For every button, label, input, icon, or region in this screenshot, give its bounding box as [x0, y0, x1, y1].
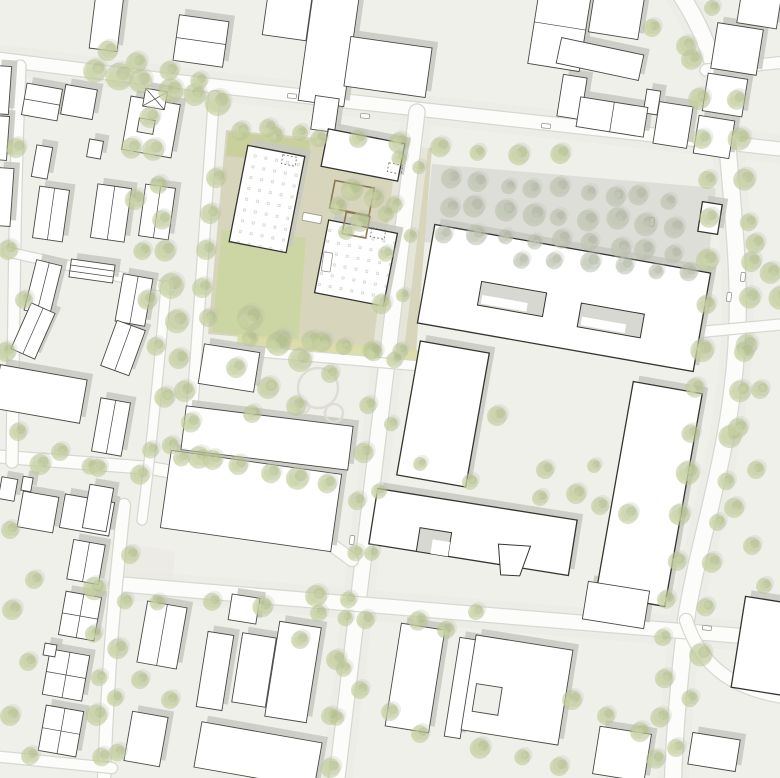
- tree-crown: [416, 163, 421, 168]
- tree-crown: [90, 632, 96, 638]
- tree-crown: [532, 213, 540, 221]
- tree-crown: [684, 269, 690, 275]
- tree-crown: [10, 609, 17, 616]
- tree-crown: [343, 668, 349, 674]
- building-footprint: [87, 139, 104, 159]
- tree-crown: [746, 296, 754, 304]
- building-footprint: [711, 23, 764, 76]
- building-footprint: [43, 643, 57, 657]
- tree-crown: [648, 23, 654, 29]
- tree-crown: [298, 639, 304, 645]
- tree-crown: [657, 634, 663, 640]
- site-plan-map: [0, 0, 780, 778]
- car: [541, 123, 550, 129]
- tree-crown: [212, 456, 219, 463]
- tree-crown: [137, 676, 143, 682]
- tree-crown: [213, 100, 222, 109]
- tree-crown: [418, 464, 423, 469]
- tree-crown: [134, 76, 142, 84]
- tree-crown: [173, 317, 181, 325]
- tree-crown: [407, 234, 412, 239]
- tree-crown: [738, 385, 746, 393]
- tree-crown: [624, 262, 630, 268]
- tree-crown: [246, 315, 255, 324]
- building: [173, 15, 229, 68]
- tree-crown: [668, 250, 674, 256]
- tree-crown: [127, 554, 133, 560]
- tree-crown: [371, 192, 378, 199]
- car: [702, 625, 711, 631]
- tree-crown: [110, 697, 116, 703]
- tree-crown: [193, 91, 201, 99]
- tree-crown: [723, 478, 729, 484]
- tree-crown: [200, 246, 207, 253]
- building: [42, 649, 89, 701]
- tree-crown: [359, 448, 366, 455]
- tree-crown: [363, 402, 369, 408]
- tree-crown: [195, 78, 201, 84]
- tree-crown: [675, 556, 682, 563]
- car: [349, 535, 355, 544]
- tree-crown: [94, 463, 100, 469]
- tree-crown: [672, 744, 678, 750]
- tree-crown: [139, 249, 145, 255]
- tree-crown: [673, 227, 680, 234]
- building: [43, 643, 57, 657]
- tree-crown: [91, 709, 99, 717]
- building-footprint: [61, 84, 98, 119]
- tree-crown: [625, 512, 632, 519]
- tree-crown: [8, 527, 14, 533]
- tree-crown: [696, 343, 704, 351]
- tree-crown: [595, 502, 601, 508]
- tree-crown: [14, 145, 21, 152]
- tree-crown: [554, 216, 560, 222]
- tree-crown: [709, 6, 715, 12]
- tree-crown: [345, 187, 353, 195]
- building: [87, 139, 104, 159]
- tree-crown: [689, 386, 696, 393]
- tree-crown: [207, 314, 213, 320]
- tree-crown: [156, 181, 162, 187]
- tree-crown: [346, 595, 352, 601]
- tree-crown: [6, 714, 13, 721]
- tree-crown: [438, 229, 444, 235]
- building-footprint: [17, 491, 59, 533]
- tree-crown: [148, 111, 155, 118]
- tree-crown: [295, 352, 303, 360]
- tree-crown: [142, 299, 149, 306]
- tree-crown: [448, 206, 455, 213]
- tree-crown: [325, 762, 332, 769]
- tree-crown: [583, 220, 591, 228]
- tree-crown: [390, 357, 396, 363]
- tree-crown: [159, 249, 166, 256]
- tree-crown: [292, 402, 299, 409]
- tree-crown: [534, 239, 539, 244]
- tree-crown: [94, 66, 102, 74]
- tree-crown: [13, 429, 19, 435]
- tree-crown: [374, 488, 379, 493]
- tree-crown: [601, 715, 607, 721]
- tree-crown: [315, 590, 323, 598]
- tree-crown: [572, 491, 579, 498]
- tree-crown: [378, 300, 385, 307]
- tree-crown: [557, 153, 564, 160]
- tree-crown: [117, 73, 127, 83]
- tree-crown: [107, 47, 114, 54]
- tree-crown: [732, 98, 739, 105]
- tree-crown: [476, 746, 483, 753]
- tree-crown: [416, 734, 422, 740]
- tree-crown: [685, 696, 691, 702]
- tree-crown: [112, 645, 119, 652]
- tree-crown: [696, 92, 704, 100]
- tree-crown: [266, 127, 272, 133]
- building: [688, 732, 740, 771]
- tree-crown: [344, 229, 350, 235]
- tree-crown: [637, 728, 644, 735]
- building-footprint: [653, 102, 693, 149]
- tree-crown: [153, 343, 160, 350]
- tree-crown: [556, 185, 563, 192]
- tree-crown: [474, 229, 481, 236]
- building-footprint: [21, 476, 33, 492]
- tree-crown: [710, 562, 717, 569]
- tree-crown: [475, 609, 481, 615]
- tree-crown: [472, 179, 479, 186]
- tree-crown: [413, 616, 420, 623]
- tree-crown: [321, 340, 328, 347]
- building: [61, 84, 98, 119]
- courtyard-paving: [430, 539, 450, 556]
- tree-crown: [167, 67, 174, 74]
- tree-crown: [395, 137, 402, 144]
- tree-crown: [684, 466, 692, 474]
- courtyard: [472, 684, 502, 716]
- building: [711, 23, 764, 76]
- tree-crown: [519, 260, 525, 266]
- tree-crown: [172, 354, 179, 361]
- tree-crown: [437, 147, 444, 154]
- tree-crown: [209, 598, 215, 604]
- tree-crown: [354, 138, 360, 144]
- tree-crown: [389, 707, 395, 713]
- building: [21, 83, 62, 121]
- tree-crown: [240, 127, 247, 134]
- building: [38, 705, 83, 757]
- tree-crown: [527, 184, 533, 190]
- tree-crown: [699, 649, 707, 657]
- tree-crown: [165, 280, 174, 289]
- tree-crown: [441, 629, 447, 635]
- building: [653, 102, 693, 149]
- tree-crown: [399, 292, 404, 297]
- tree-crown: [170, 89, 179, 98]
- tree-crown: [514, 151, 521, 158]
- tree-crown: [656, 714, 663, 721]
- tree-crown: [390, 421, 395, 426]
- tree-crown: [508, 186, 513, 191]
- tree-crown: [331, 658, 338, 665]
- tree-crown: [25, 659, 31, 665]
- tree-crown: [136, 469, 143, 476]
- tree-crown: [761, 582, 767, 588]
- tree-crown: [586, 241, 592, 247]
- tree-crown: [359, 687, 365, 693]
- car: [726, 292, 732, 301]
- tree-crown: [616, 215, 624, 223]
- tree-crown: [589, 256, 596, 263]
- tree-crown: [473, 152, 479, 158]
- tree-crown: [555, 761, 562, 768]
- car: [360, 113, 369, 118]
- tree-crown: [504, 235, 509, 240]
- tree-crown: [747, 544, 753, 550]
- tree-crown: [769, 271, 777, 279]
- tree-crown: [685, 42, 692, 49]
- building: [262, 0, 313, 41]
- building: [21, 476, 33, 492]
- tree-crown: [469, 477, 475, 483]
- tree-crown: [732, 507, 739, 514]
- tree-crown: [735, 425, 742, 432]
- tree-crown: [491, 411, 498, 418]
- tree-crown: [19, 296, 25, 302]
- tree-crown: [666, 200, 672, 206]
- tree-crown: [356, 221, 363, 228]
- tree-crown: [124, 597, 130, 603]
- building: [90, 184, 131, 242]
- tree-crown: [673, 510, 681, 518]
- tree-crown: [643, 221, 651, 229]
- tree-crown: [179, 455, 185, 461]
- tree-crown: [354, 549, 360, 555]
- tree-crown: [169, 697, 175, 703]
- tree-crown: [751, 241, 758, 248]
- tree-crown: [704, 602, 710, 608]
- tree-crown: [99, 674, 105, 680]
- tree-crown: [152, 602, 158, 608]
- tree-crown: [397, 154, 402, 159]
- tree-crown: [368, 351, 374, 357]
- tree-crown: [290, 478, 298, 486]
- site-plan-canvas: [0, 0, 780, 778]
- tree-crown: [446, 172, 453, 179]
- tree-crown: [716, 518, 722, 524]
- tree-crown: [360, 619, 366, 625]
- tree-crown: [132, 57, 139, 64]
- tree-crown: [297, 130, 303, 136]
- tree-crown: [702, 258, 710, 266]
- tree-crown: [382, 251, 387, 256]
- tree-crown: [367, 551, 372, 556]
- tree-crown: [318, 611, 324, 617]
- tree-crown: [521, 752, 527, 758]
- tree-crown: [326, 711, 332, 717]
- tree-crown: [316, 138, 322, 144]
- tree-crown: [130, 198, 137, 205]
- building-footprint: [262, 0, 313, 41]
- tree-crown: [233, 464, 240, 471]
- tree-crown: [738, 349, 745, 356]
- tree-crown: [703, 300, 710, 307]
- car: [740, 272, 746, 281]
- tree-crown: [592, 463, 597, 468]
- tree-crown: [258, 604, 265, 611]
- tree-crown: [620, 245, 627, 252]
- tree-crown: [333, 204, 339, 210]
- tree-crown: [213, 175, 220, 182]
- tree-crown: [250, 409, 256, 415]
- tree-crown: [654, 267, 659, 272]
- building-footprint: [311, 95, 339, 132]
- tree-crown: [93, 581, 101, 589]
- tree-crown: [504, 204, 512, 212]
- tree-crown: [686, 430, 692, 436]
- tree-crown: [158, 219, 165, 226]
- tree-crown: [5, 246, 12, 253]
- tree-crown: [632, 191, 639, 198]
- tree-crown: [569, 699, 576, 706]
- tree-crown: [732, 133, 740, 141]
- tree-crown: [703, 177, 709, 183]
- tree-crown: [759, 385, 765, 391]
- tree-crown: [267, 381, 275, 389]
- tree-crown: [342, 614, 348, 620]
- tree-crown: [148, 447, 154, 453]
- tree-crown: [30, 576, 36, 582]
- building: [461, 635, 573, 745]
- tree-crown: [247, 337, 253, 343]
- tree-crown: [232, 367, 239, 374]
- tree-crown: [343, 342, 349, 348]
- tree-crown: [740, 176, 748, 184]
- tree-crown: [384, 213, 390, 219]
- tree-crown: [5, 350, 12, 357]
- tree-crown: [25, 752, 31, 758]
- building-footprint: [688, 732, 740, 771]
- tree-crown: [638, 244, 645, 251]
- tree-crown: [100, 756, 107, 763]
- building: [17, 491, 59, 533]
- building: [311, 95, 339, 132]
- tree-crown: [705, 213, 712, 220]
- tree-crown: [614, 192, 621, 199]
- tree-crown: [129, 144, 136, 151]
- tree-crown: [116, 751, 122, 757]
- tree-crown: [59, 449, 65, 455]
- tree-crown: [170, 444, 176, 450]
- building: [344, 37, 432, 98]
- tree-crown: [745, 221, 751, 227]
- tree-crown: [272, 342, 280, 350]
- building-footprint: [344, 37, 432, 98]
- tree-crown: [208, 209, 215, 216]
- tree-crown: [752, 466, 758, 472]
- tree-crown: [200, 287, 207, 294]
- tree-crown: [268, 469, 275, 476]
- tree-crown: [540, 467, 546, 473]
- tree-crown: [150, 144, 158, 152]
- tree-crown: [559, 238, 566, 245]
- tree-crown: [536, 494, 542, 500]
- tree-crown: [661, 596, 667, 602]
- tree-crown: [662, 675, 669, 682]
- tree-crown: [650, 758, 657, 765]
- tree-crown: [329, 371, 335, 377]
- tree-crown: [187, 422, 194, 429]
- tree-crown: [747, 260, 754, 267]
- tree-crown: [178, 388, 185, 395]
- tree-crown: [551, 258, 557, 264]
- tree-crown: [588, 192, 594, 198]
- tree-crown: [321, 479, 328, 486]
- tree-crown: [697, 134, 704, 141]
- car: [287, 93, 296, 98]
- tree-crown: [164, 392, 171, 399]
- tree-crown: [36, 462, 43, 469]
- tree-crown: [352, 497, 358, 503]
- tree-crown: [468, 205, 476, 213]
